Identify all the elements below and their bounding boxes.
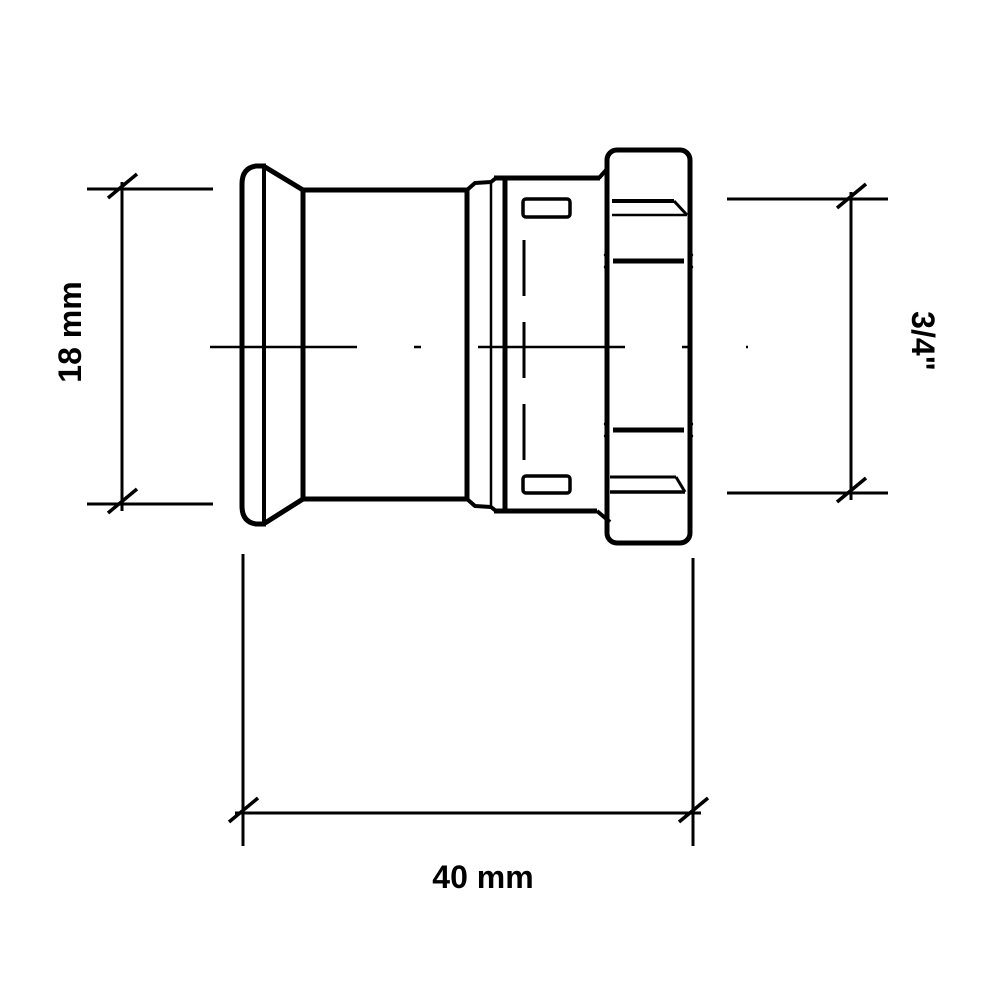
dimension-thread-3-4-inch: 3/4": [727, 184, 941, 502]
dimension-height-18mm: 18 mm: [52, 174, 213, 513]
thread-undercut-bottom: [523, 476, 570, 493]
dimension-length-40mm: 40 mm: [229, 554, 708, 895]
body-outline: [303, 190, 467, 499]
thread-undercut-top: [523, 199, 570, 217]
flange-bottom-chamfer: [265, 499, 303, 523]
nut-top-chamfer-lines: [612, 201, 687, 215]
thread-dimension-label: 3/4": [905, 311, 941, 371]
fitting-body: [303, 190, 467, 499]
nut-bottom-chamfer-lines: [610, 477, 685, 492]
flange-top-chamfer: [265, 167, 303, 190]
nut-corner-dots: [604, 253, 693, 438]
press-end-flange: [242, 166, 303, 524]
thread-section: [494, 169, 610, 522]
body-thread-transition: [467, 178, 496, 511]
height-dimension-label: 18 mm: [52, 281, 88, 382]
fitting-technical-drawing: 18 mm 3/4" 40 mm: [0, 0, 1000, 1000]
technical-drawing-canvas: 18 mm 3/4" 40 mm: [0, 0, 1000, 1000]
length-dimension-label: 40 mm: [432, 859, 533, 895]
